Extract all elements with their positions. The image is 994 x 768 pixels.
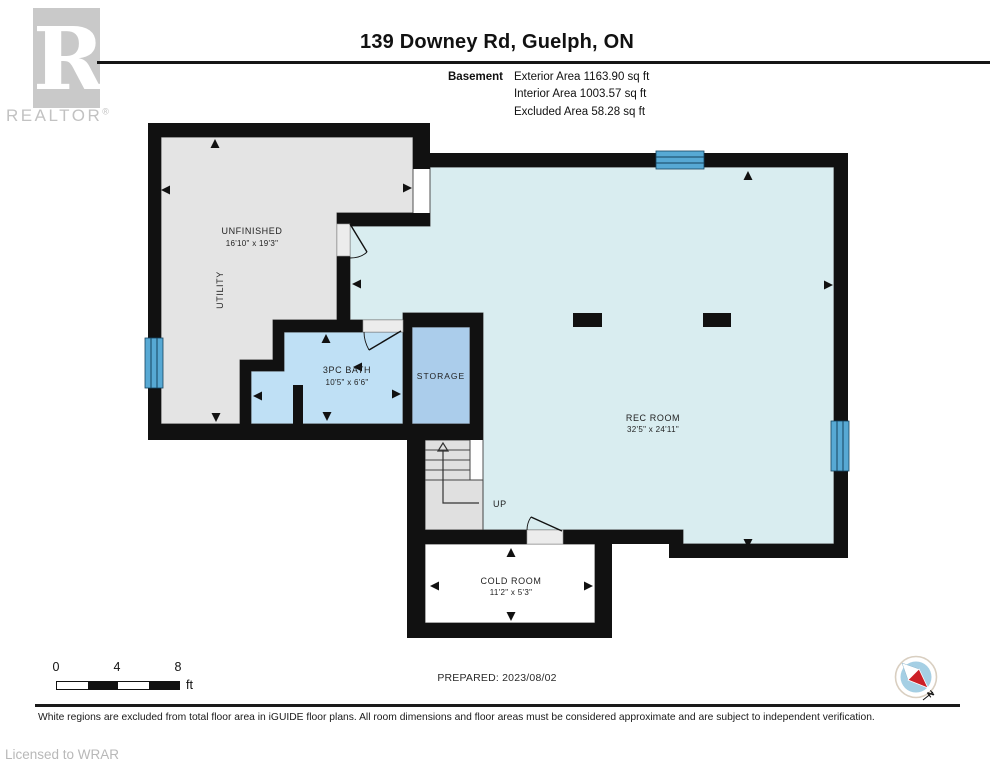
support-post xyxy=(703,313,731,327)
label-stairs-up: UP xyxy=(493,499,507,509)
label-utility: UTILITY xyxy=(215,271,225,309)
floorplan-page: R REALTOR® 139 Downey Rd, Guelph, ON Bas… xyxy=(0,0,994,768)
dims-cold-room: 11'2" x 5'3" xyxy=(490,588,532,597)
label-storage: STORAGE xyxy=(417,371,465,381)
window-top xyxy=(656,151,704,169)
dims-unfinished: 16'10" x 19'3" xyxy=(226,239,279,248)
window-left xyxy=(145,338,163,388)
compass-north-label: N xyxy=(925,688,936,700)
compass-icon: N xyxy=(893,654,941,702)
dims-bath: 10'5" x 6'6" xyxy=(325,378,368,387)
footer-divider xyxy=(35,704,960,707)
label-unfinished: UNFINISHED xyxy=(221,226,282,236)
dims-rec-room: 32'5" x 24'11" xyxy=(627,425,679,434)
support-post xyxy=(573,313,602,327)
prepared-date: PREPARED: 2023/08/02 xyxy=(0,672,994,684)
stairs xyxy=(425,440,483,530)
stairs-floor xyxy=(425,440,483,530)
license-text: Licensed to WRAR xyxy=(5,747,119,762)
label-rec-room: REC ROOM xyxy=(626,413,680,423)
label-cold-room: COLD ROOM xyxy=(481,576,542,586)
floorplan-drawing: UNFINISHED 16'10" x 19'3" UTILITY 3PC BA… xyxy=(0,0,994,768)
disclaimer-text: White regions are excluded from total fl… xyxy=(38,712,875,723)
label-bath: 3PC BATH xyxy=(323,365,371,375)
window-right xyxy=(831,421,849,471)
